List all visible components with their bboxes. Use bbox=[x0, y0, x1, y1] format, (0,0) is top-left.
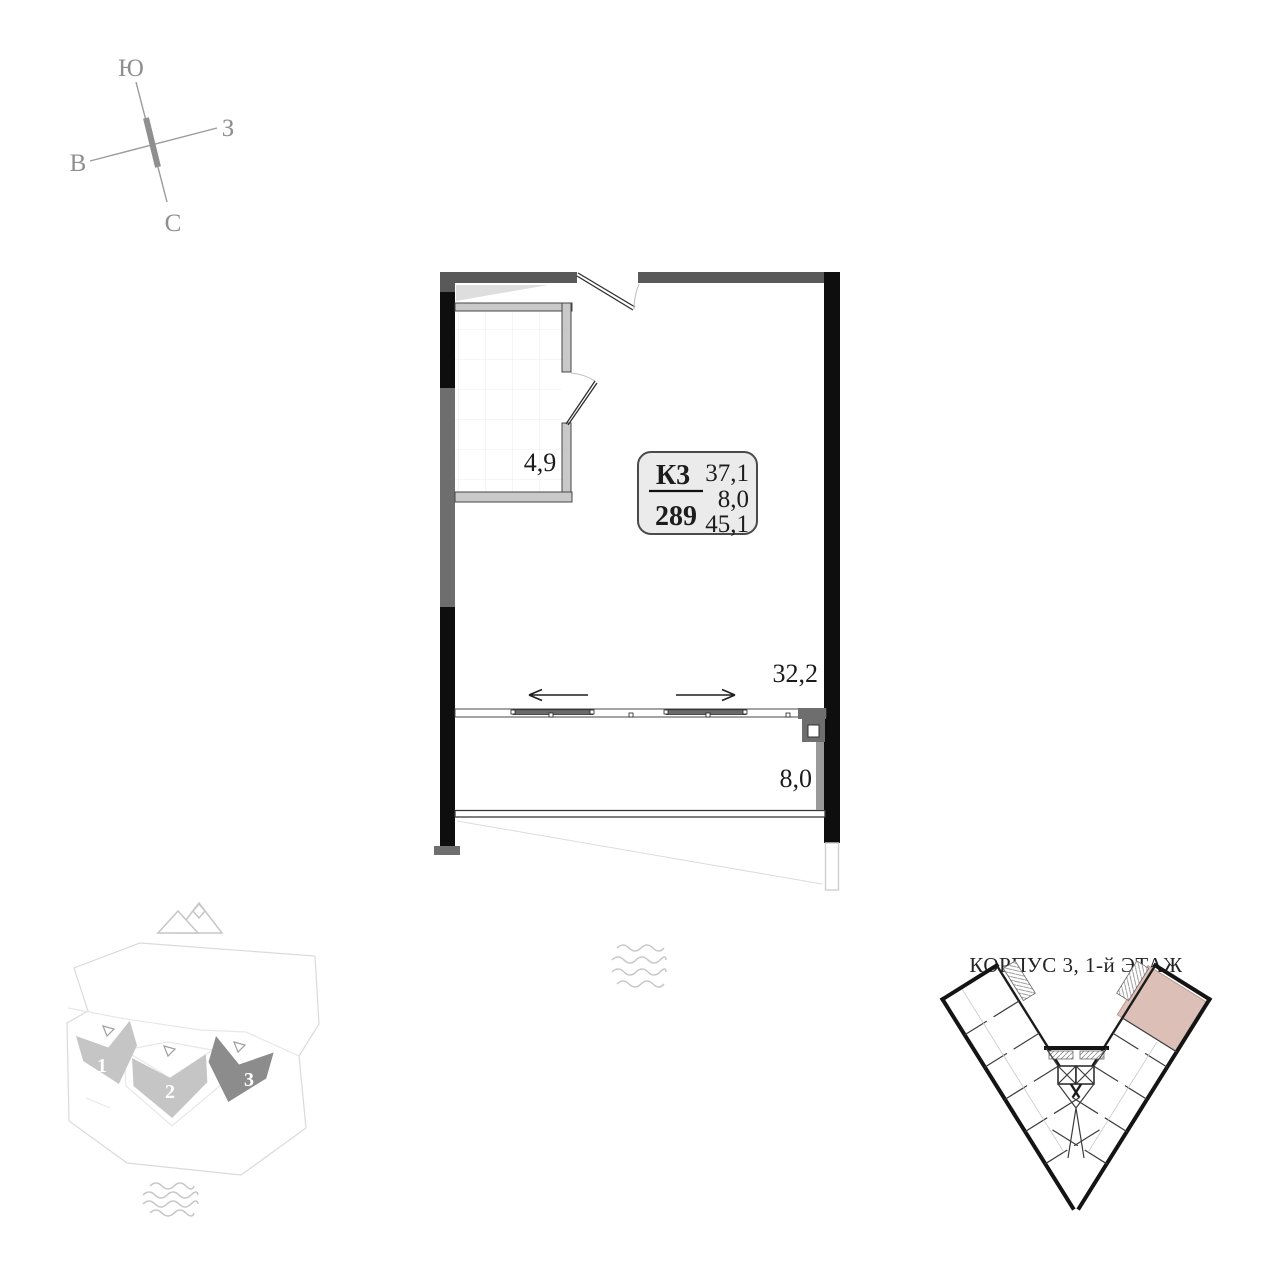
panel-handle bbox=[590, 710, 594, 714]
mountains-icon bbox=[158, 903, 222, 933]
bathroom-wall-right-lower bbox=[562, 423, 571, 502]
mini-plan-core bbox=[1046, 1048, 1107, 1158]
building-code-label: К3 bbox=[656, 460, 690, 491]
bathroom-wall-right-upper bbox=[562, 303, 571, 372]
panel-handle bbox=[511, 710, 515, 714]
building-2-label: 2 bbox=[165, 1081, 175, 1103]
building-3-marker-icon bbox=[234, 1042, 245, 1052]
bathroom-door-leaf bbox=[566, 381, 595, 424]
building-1-label: 1 bbox=[97, 1055, 107, 1077]
panel-handle bbox=[664, 710, 668, 714]
compass-label-bottom: С bbox=[165, 210, 182, 237]
site-building-2[interactable]: 2 bbox=[132, 1054, 209, 1120]
area-balcony-label: 8,0 bbox=[718, 486, 749, 513]
waves-icon bbox=[612, 945, 666, 987]
wall-left-a bbox=[440, 272, 455, 292]
bathroom-area-label: 4,9 bbox=[524, 448, 557, 477]
bathroom-door-leaf2 bbox=[568, 383, 597, 425]
wall-top-left bbox=[440, 272, 577, 283]
site-plan: 1 2 3 bbox=[67, 903, 319, 1216]
mini-plan-right-wing bbox=[1010, 956, 1210, 1208]
wall-right-stub bbox=[826, 843, 839, 890]
bathroom-wall-bottom bbox=[455, 492, 572, 502]
floorplan-page: Ю З В С bbox=[0, 0, 1280, 1280]
area-main-label: 37,1 bbox=[705, 460, 749, 487]
entrance-door-arc bbox=[634, 284, 639, 309]
compass-rose: Ю З В С bbox=[70, 55, 235, 237]
slide-arrow-left bbox=[529, 690, 588, 701]
wall-right bbox=[824, 272, 840, 843]
apartment-plan: 4,9 32,2 8,0 К3 289 37,1 8,0 45,1 bbox=[434, 272, 840, 890]
panel-handle bbox=[743, 710, 747, 714]
wall-top-right bbox=[638, 272, 826, 283]
panel-handle bbox=[629, 713, 633, 717]
sliding-track-endblock bbox=[798, 708, 826, 719]
bathroom-door-arc bbox=[571, 373, 595, 381]
wall-left-d bbox=[440, 607, 455, 846]
mini-plan-left-wing bbox=[942, 956, 1142, 1208]
slide-arrow-right bbox=[676, 690, 735, 701]
floorplan-scene: Ю З В С bbox=[0, 0, 1280, 1280]
balcony-pillar-core bbox=[808, 725, 819, 737]
room-area-label: 32,2 bbox=[773, 659, 819, 688]
panel-handle bbox=[706, 713, 710, 717]
compass-label-right: З bbox=[222, 115, 235, 142]
panel-handle bbox=[786, 713, 790, 717]
unit-info-box: К3 289 37,1 8,0 45,1 bbox=[638, 452, 757, 538]
balcony-area-label: 8,0 bbox=[780, 764, 813, 793]
building-2-marker-icon bbox=[164, 1046, 175, 1056]
balcony-wall-liner bbox=[816, 742, 824, 810]
bathroom-wall-top bbox=[455, 303, 572, 311]
building-1-marker-icon bbox=[103, 1026, 114, 1036]
terrace-edge-line bbox=[457, 821, 822, 884]
unit-number-label: 289 bbox=[655, 501, 697, 532]
duct-wedge bbox=[456, 285, 548, 301]
wall-left-foot bbox=[434, 846, 460, 855]
compass-label-top: Ю bbox=[118, 55, 144, 82]
floor-mini-plan: КОРПУС 3, 1-й ЭТАЖ bbox=[942, 953, 1209, 1208]
balcony-railing bbox=[455, 811, 825, 818]
entrance-door-leaf bbox=[577, 276, 633, 310]
wall-left-b bbox=[440, 292, 455, 388]
area-total-label: 45,1 bbox=[705, 511, 749, 538]
compass-needle bbox=[146, 118, 158, 167]
compass-label-left: В bbox=[70, 150, 87, 177]
building-3-label: 3 bbox=[244, 1069, 254, 1091]
panel-handle bbox=[549, 713, 553, 717]
entrance-door-leaf2 bbox=[578, 273, 635, 307]
waves-icon-site bbox=[143, 1183, 198, 1216]
wall-left-c bbox=[440, 388, 455, 607]
